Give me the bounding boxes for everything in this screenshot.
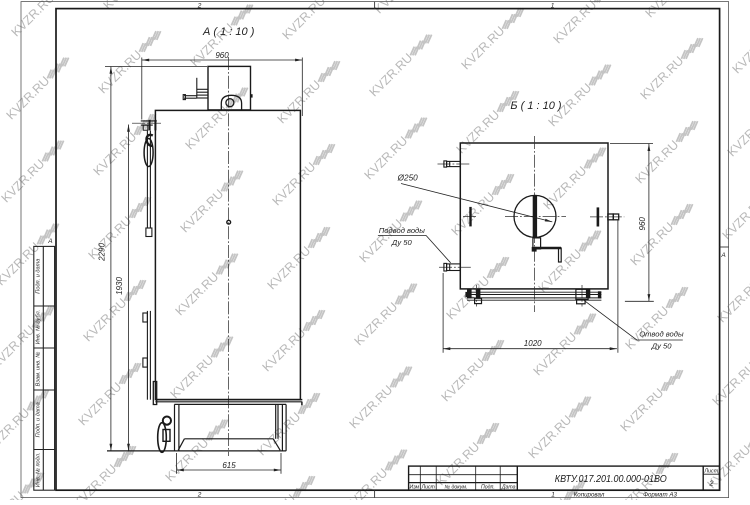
svg-text:Ду 50: Ду 50 [391,238,413,247]
svg-text:Лист: Лист [421,484,436,490]
svg-text:2: 2 [197,491,202,498]
svg-text:615: 615 [222,461,236,470]
svg-text:Подп.: Подп. [481,484,495,490]
svg-text:Формат А3: Формат А3 [643,492,677,499]
svg-text:А: А [720,252,725,259]
svg-text:Копировал: Копировал [574,492,605,499]
svg-text:2: 2 [708,479,714,488]
svg-text:А ( 1 : 10 ): А ( 1 : 10 ) [202,26,255,38]
svg-text:КВТУ.017.201.00.000-01ВО: КВТУ.017.201.00.000-01ВО [555,473,667,485]
svg-text:Подвод воды: Подвод воды [379,226,425,235]
svg-text:1: 1 [551,491,555,498]
svg-text:Взам. инв. №: Взам. инв. № [36,352,42,387]
svg-text:Б ( 1 : 10 ): Б ( 1 : 10 ) [510,100,562,112]
svg-text:1: 1 [551,2,555,9]
svg-text:Подп. и дата: Подп. и дата [36,402,42,437]
svg-text:960: 960 [215,51,229,60]
svg-text:Подп. и дата: Подп. и дата [36,259,42,294]
svg-text:1020: 1020 [524,339,542,348]
svg-text:2290: 2290 [98,243,107,262]
svg-text:Инв. № подл.: Инв. № подл. [36,453,42,488]
svg-text:Изм: Изм [409,484,419,490]
svg-text:Отвод воды: Отвод воды [639,329,684,338]
svg-text:2: 2 [197,2,202,9]
svg-text:1930: 1930 [115,277,124,295]
svg-text:Ду 50: Ду 50 [651,341,673,350]
svg-text:№ докум.: № докум. [444,484,467,490]
svg-text:Инв. № дубл.: Инв. № дубл. [36,310,42,344]
svg-text:960: 960 [638,217,647,231]
svg-text:А: А [47,238,52,245]
svg-text:Лист: Лист [703,469,718,475]
svg-text:Ø250: Ø250 [397,174,418,183]
svg-text:Дата: Дата [501,484,516,490]
